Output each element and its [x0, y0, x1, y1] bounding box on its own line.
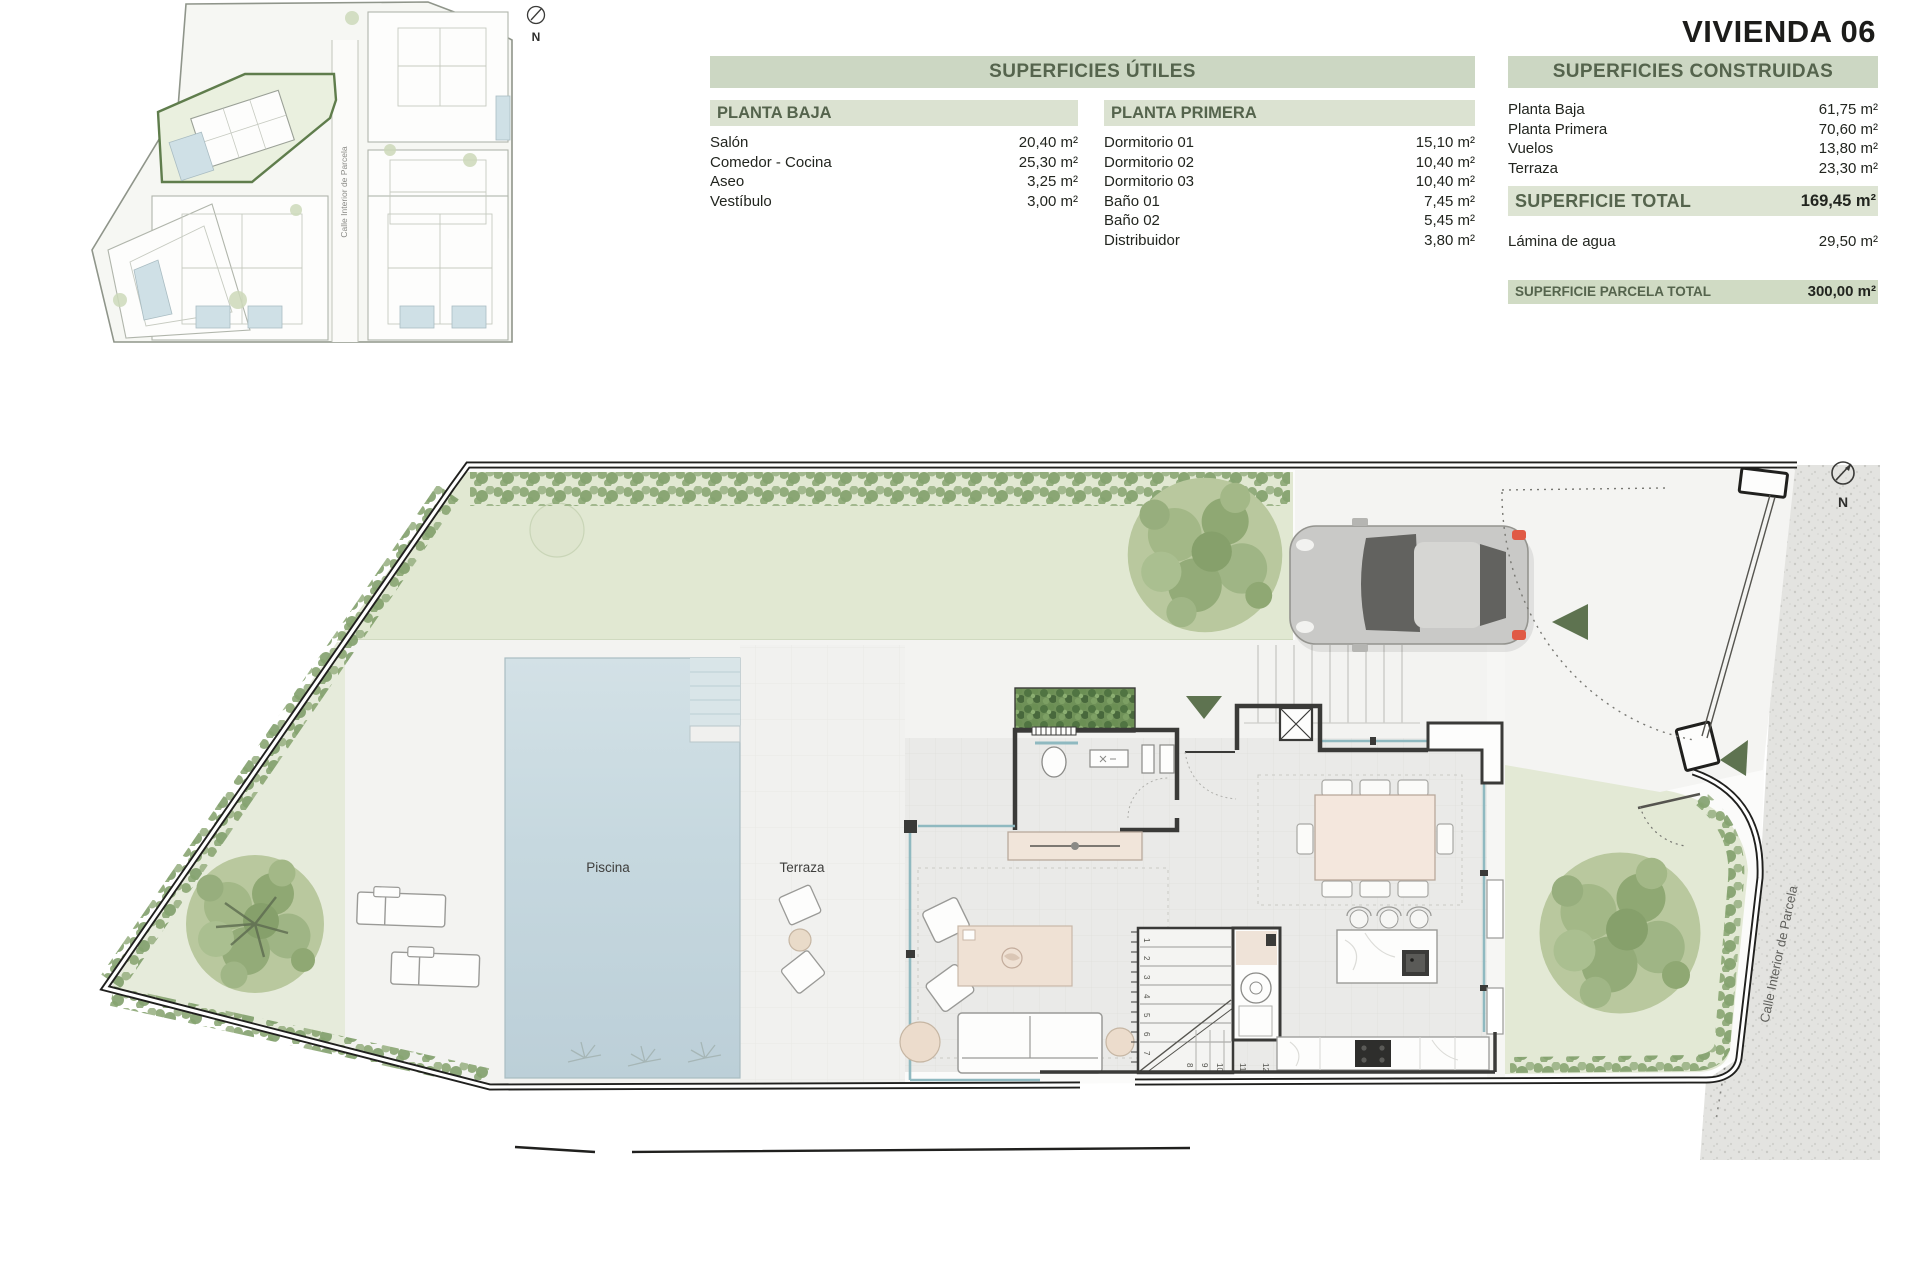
svg-text:N: N — [1838, 494, 1848, 510]
area-row: Planta Baja61,75 m² — [1508, 100, 1878, 120]
terrace-label: Terraza — [779, 860, 825, 875]
area-row: Vestíbulo3,00 m² — [710, 192, 1078, 212]
area-row: Dormitorio 0210,40 m² — [1104, 153, 1475, 173]
superficies-construidas-table: SUPERFICIES CONSTRUIDAS Planta Baja61,75… — [1508, 56, 1878, 304]
area-row: Comedor - Cocina25,30 m² — [710, 153, 1078, 173]
svg-text:2: 2 — [1142, 956, 1151, 961]
laundry-room — [1233, 928, 1280, 1040]
svg-text:1: 1 — [1142, 938, 1151, 943]
tree — [1540, 853, 1701, 1014]
svg-text:7: 7 — [1142, 1051, 1151, 1056]
page-title: VIVIENDA 06 — [1682, 14, 1876, 50]
table-header: SUPERFICIES ÚTILES — [710, 56, 1475, 88]
table-header: SUPERFICIES CONSTRUIDAS — [1508, 56, 1878, 88]
svg-text:5: 5 — [1142, 1013, 1151, 1018]
planta-primera-column: PLANTA PRIMERA Dormitorio 0115,10 m² Dor… — [1104, 100, 1475, 250]
svg-text:9: 9 — [1200, 1063, 1209, 1068]
svg-text:4: 4 — [1142, 994, 1151, 999]
pool-label: Piscina — [586, 860, 630, 875]
lamina-row: Lámina de agua 29,50 m² — [1508, 232, 1878, 252]
svg-text:6: 6 — [1142, 1032, 1151, 1037]
parcela-total-row: SUPERFICIE PARCELA TOTAL 300,00 m² — [1508, 280, 1878, 304]
main-floor-plan: Piscina Terraza — [105, 462, 1880, 1160]
tree — [186, 855, 324, 993]
site-street-label: Calle Interior de Parcela — [339, 146, 349, 237]
column-header: PLANTA BAJA — [710, 100, 1078, 126]
tree — [1128, 478, 1283, 633]
area-row: Aseo3,25 m² — [710, 172, 1078, 192]
coffee-table — [958, 926, 1072, 986]
car — [1290, 518, 1534, 652]
column-header: PLANTA PRIMERA — [1104, 100, 1475, 126]
area-row: Terraza23,30 m² — [1508, 159, 1878, 179]
area-row: Dormitorio 0115,10 m² — [1104, 133, 1475, 153]
area-row: Dormitorio 0310,40 m² — [1104, 172, 1475, 192]
area-row: Vuelos13,80 m² — [1508, 139, 1878, 159]
area-row: Distribuidor3,80 m² — [1104, 231, 1475, 251]
area-row: Baño 017,45 m² — [1104, 192, 1475, 212]
north-compass-icon: N — [528, 7, 545, 45]
tv-sideboard — [1008, 832, 1142, 860]
dining-set — [1297, 780, 1453, 897]
planta-baja-column: PLANTA BAJA Salón20,40 m² Comedor - Coci… — [710, 100, 1078, 250]
area-row: Salón20,40 m² — [710, 133, 1078, 153]
site-plan-thumbnail: Calle Interior de Parcela N — [92, 2, 545, 342]
sofa — [958, 1013, 1102, 1073]
planter — [1015, 688, 1135, 732]
svg-text:8: 8 — [1185, 1063, 1194, 1068]
total-row: SUPERFICIE TOTAL 169,45 m² — [1508, 186, 1878, 216]
side-table — [900, 1022, 940, 1062]
superficies-utiles-table: SUPERFICIES ÚTILES PLANTA BAJA Salón20,4… — [710, 56, 1475, 250]
pool: Piscina — [505, 658, 740, 1078]
kitchen-island — [1337, 907, 1437, 983]
area-row: Planta Primera70,60 m² — [1508, 120, 1878, 140]
svg-text:3: 3 — [1142, 975, 1151, 980]
svg-text:N: N — [532, 30, 541, 44]
area-row: Baño 025,45 m² — [1104, 211, 1475, 231]
side-table — [1106, 1028, 1134, 1056]
